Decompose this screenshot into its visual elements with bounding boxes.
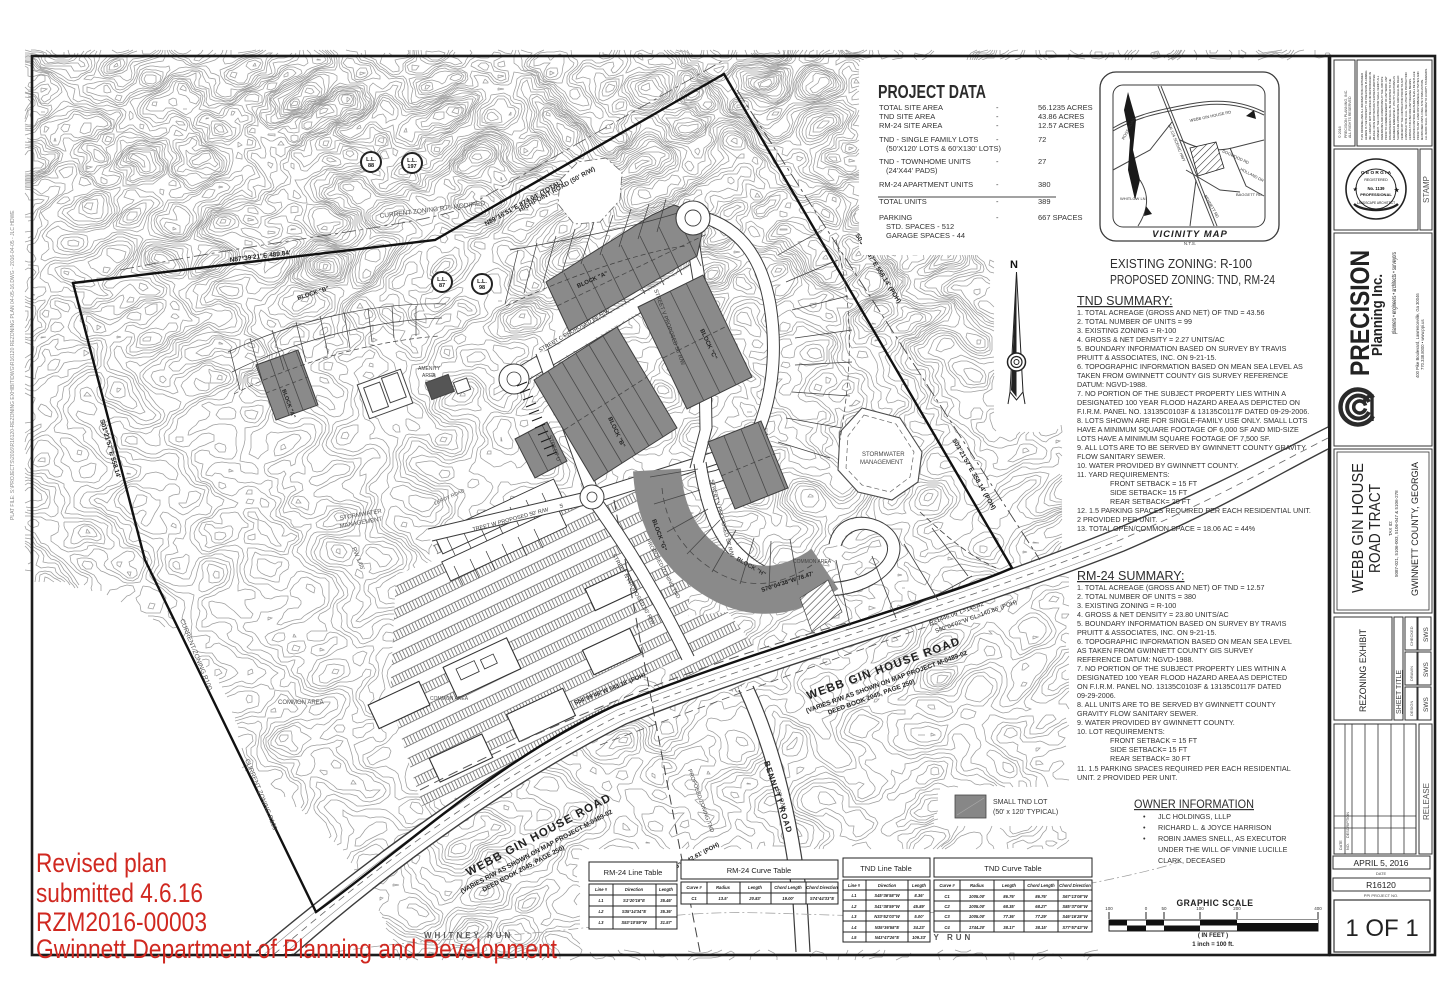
svg-text:TOTAL UNITS: TOTAL UNITS (879, 197, 927, 206)
svg-text:submitted 4.6.16: submitted 4.6.16 (36, 878, 203, 908)
svg-text:MANAGEMENT: MANAGEMENT (860, 460, 903, 466)
svg-text:STORMWATER: STORMWATER (862, 452, 905, 458)
svg-text:Length: Length (748, 885, 762, 890)
svg-text:RZM2016-00003: RZM2016-00003 (36, 907, 207, 937)
svg-text:FRONT SETBACK = 15 FT: FRONT SETBACK = 15 FT (1110, 479, 1198, 488)
svg-text:1005.00': 1005.00' (969, 914, 986, 919)
svg-text:5.00': 5.00' (914, 914, 924, 919)
svg-text:LOTS HAVE A MINIMUM SQUARE FOO: LOTS HAVE A MINIMUM SQUARE FOOTAGE OF 7,… (1077, 434, 1270, 443)
svg-text:REAR SETBACK= 20 FT: REAR SETBACK= 20 FT (1110, 497, 1191, 506)
svg-text:35.36': 35.36' (660, 909, 672, 914)
svg-text:10. WATER PROVIDED BY GWINNETT: 10. WATER PROVIDED BY GWINNETT COUNTY. (1077, 461, 1239, 470)
svg-text:N33°52'03"W: N33°52'03"W (874, 914, 901, 919)
svg-text:UNDER THE WILL OF VINNIE LUCIL: UNDER THE WILL OF VINNIE LUCILLE (1158, 845, 1288, 854)
svg-text:HAVE A MINIMUM SQUARE FOOTAGE: HAVE A MINIMUM SQUARE FOOTAGE OF 6,000 S… (1077, 425, 1299, 434)
svg-text:LANDSCAPE ARCHITECT: LANDSCAPE ARCHITECT (1357, 201, 1395, 205)
svg-text:10. LOT REQUIREMENTS:: 10. LOT REQUIREMENTS: (1077, 727, 1165, 736)
svg-text:TND SITE AREA: TND SITE AREA (879, 112, 935, 121)
svg-text:68.35': 68.35' (1003, 904, 1015, 909)
svg-text:MAINTAINED UNTIL FINAL SITE ST: MAINTAINED UNTIL FINAL SITE STABILIZATIO… (1420, 79, 1424, 140)
svg-text:8. ALL UNITS ARE TO BE SERVED: 8. ALL UNITS ARE TO BE SERVED BY GWINNET… (1077, 700, 1276, 709)
svg-text:REGISTERED: REGISTERED (1364, 178, 1388, 182)
svg-text:L2: L2 (599, 909, 605, 914)
svg-text:PRIOR TO ANY LAND DISTURBANCE: PRIOR TO ANY LAND DISTURBANCE ACTIVITIES… (1416, 72, 1420, 140)
svg-text:( IN FEET ): ( IN FEET ) (1198, 933, 1228, 939)
svg-text:DIMENSIONS AND CONDITIONS AT T: DIMENSIONS AND CONDITIONS AT THE JOB SIT… (1380, 76, 1384, 140)
svg-text:L5: L5 (852, 935, 858, 940)
svg-text:COMMON AREA: COMMON AREA (793, 559, 832, 565)
svg-text:Planning Inc.: Planning Inc. (1370, 274, 1386, 356)
svg-text:(50' x 120' TYPICAL): (50' x 120' TYPICAL) (993, 809, 1058, 816)
svg-text:68.27': 68.27' (1035, 904, 1047, 909)
svg-text:S67°13'08"W: S67°13'08"W (1062, 894, 1088, 899)
svg-text:PRIOR TO COMMENCEMENT OF ANY W: PRIOR TO COMMENCEMENT OF ANY WORK. ANY (1384, 76, 1388, 140)
svg-text:ROAD TRACT: ROAD TRACT (1367, 484, 1384, 573)
svg-text:1 inch = 100 ft.: 1 inch = 100 ft. (1192, 942, 1234, 948)
svg-text:HEREIN IS THE PROPERTY OF PREC: HEREIN IS THE PROPERTY OF PRECISION PLAN… (1364, 71, 1368, 140)
svg-text:PRUITT & ASSOCIATES, INC. ON 9: PRUITT & ASSOCIATES, INC. ON 9-21-15. (1077, 628, 1217, 637)
svg-text:WEBB GIN HOUSE: WEBB GIN HOUSE (1350, 463, 1367, 593)
svg-text:PARKING: PARKING (879, 213, 912, 222)
svg-text:13.5': 13.5' (718, 896, 728, 901)
svg-text:109.33': 109.33' (912, 935, 927, 940)
svg-text:1005.00': 1005.00' (969, 894, 986, 899)
svg-text:TOTAL SITE AREA: TOTAL SITE AREA (879, 103, 943, 112)
svg-text:3. EXISTING ZONING = R-100: 3. EXISTING ZONING = R-100 (1077, 326, 1176, 335)
svg-text:R16120: R16120 (1366, 880, 1396, 890)
svg-text:43.86 ACRES: 43.86 ACRES (1038, 112, 1084, 121)
svg-text:DESIGNATED 100 YEAR FLOOD HAZA: DESIGNATED 100 YEAR FLOOD HAZARD AREA AS… (1077, 398, 1300, 407)
svg-text:09-29-2006.: 09-29-2006. (1077, 691, 1116, 700)
svg-text:200: 200 (1233, 906, 1241, 911)
svg-text:S41°38'59"W: S41°38'59"W (874, 904, 900, 909)
svg-text:DESIGNATED 100 YEAR FLOOD HAZA: DESIGNATED 100 YEAR FLOOD HAZARD AREA AS… (1077, 673, 1287, 682)
svg-text:C1: C1 (944, 894, 950, 899)
svg-text:Revised plan: Revised plan (36, 848, 167, 878)
svg-text:THIS DRAWING AND ALL INFORMATI: THIS DRAWING AND ALL INFORMATION CONTAIN… (1360, 73, 1364, 140)
svg-text:NO.: NO. (1346, 843, 1350, 850)
svg-text:DISCREPANCIES SHALL BE REPORTE: DISCREPANCIES SHALL BE REPORTED TO THE (1388, 78, 1392, 140)
svg-text:AREA: AREA (422, 373, 436, 379)
svg-text:S35°14'34"E: S35°14'34"E (622, 909, 646, 914)
svg-text:REAR SETBACK= 30 FT: REAR SETBACK= 30 FT (1110, 754, 1191, 763)
svg-text:★: ★ (1353, 187, 1358, 193)
svg-text:2. TOTAL NUMBER OF UNITS = 99: 2. TOTAL NUMBER OF UNITS = 99 (1077, 317, 1192, 326)
svg-text:56.1235 ACRES: 56.1235 ACRES (1038, 103, 1093, 112)
svg-text:Line #: Line # (595, 887, 608, 892)
svg-text:19.00': 19.00' (782, 896, 794, 901)
svg-text:8.36': 8.36' (914, 893, 924, 898)
svg-text:DATUM: NGVD-1988.: DATUM: NGVD-1988. (1077, 380, 1147, 389)
svg-text:SWS: SWS (1423, 697, 1430, 712)
svg-text:Line #: Line # (848, 883, 861, 888)
svg-text:45.89': 45.89' (912, 904, 925, 909)
svg-text:100: 100 (1196, 906, 1204, 911)
svg-text:11. YARD REQUIREMENTS:: 11. YARD REQUIREMENTS: (1077, 470, 1170, 479)
svg-text:L3: L3 (599, 920, 605, 925)
svg-text:CLARK, DECEASED: CLARK, DECEASED (1158, 856, 1226, 865)
svg-text:PPI PROJECT NO.: PPI PROJECT NO. (1364, 893, 1398, 898)
svg-text:ROBIN JAMES SNELL, AS EXECUTOR: ROBIN JAMES SNELL, AS EXECUTOR (1158, 834, 1286, 843)
svg-text:EROSION CONTROL MEASURES SHALL: EROSION CONTROL MEASURES SHALL BE IN PLA… (1412, 71, 1416, 140)
svg-text:REFERENCE DATUM: NGVD-1988.: REFERENCE DATUM: NGVD-1988. (1077, 655, 1193, 664)
svg-text:Length: Length (1002, 883, 1016, 888)
svg-text:TND SUMMARY:: TND SUMMARY: (1077, 294, 1173, 308)
svg-text:12. 1.5 PARKING SPACES REQUIRE: 12. 1.5 PARKING SPACES REQUIRED PER EACH… (1077, 506, 1311, 515)
svg-text:86.76': 86.76' (1035, 894, 1047, 899)
svg-text:S45°36'58"W: S45°36'58"W (874, 893, 900, 898)
svg-text:6. TOPOGRAPHIC INFORMATION BAS: 6. TOPOGRAPHIC INFORMATION BASED ON MEAN… (1077, 362, 1303, 371)
svg-text:SMALL TND LOT: SMALL TND LOT (993, 799, 1048, 806)
svg-text:SHOWN ARE APPROXIMATE AND SHAL: SHOWN ARE APPROXIMATE AND SHALL BE FIELD (1396, 76, 1400, 140)
svg-text:ENGINEER IMMEDIATELY. UTILITY: ENGINEER IMMEDIATELY. UTILITY LOCATIONS … (1392, 76, 1396, 140)
svg-text:CONSENT. THE CONTRACTOR SHALL: CONSENT. THE CONTRACTOR SHALL VERIFY ALL (1376, 75, 1380, 140)
svg-text:OWNER INFORMATION: OWNER INFORMATION (1134, 797, 1254, 811)
svg-text:RELEASE: RELEASE (1422, 783, 1431, 820)
svg-text:86.76': 86.76' (1003, 894, 1015, 899)
svg-text:SWS: SWS (1423, 662, 1430, 677)
svg-text:770.338.8000 • www.ppi.us: 770.338.8000 • www.ppi.us (1420, 319, 1425, 370)
svg-text:planners • engineers • arc: planners • engineers • architects • surv… (1392, 252, 1398, 334)
svg-text:REZONING EXHIBIT: REZONING EXHIBIT (1358, 629, 1369, 712)
svg-text:ALL RIGHTS RESERVED: ALL RIGHTS RESERVED (1348, 96, 1352, 138)
svg-text:6. TOPOGRAPHIC INFORMATION BAS: 6. TOPOGRAPHIC INFORMATION BASED ON MEAN… (1077, 637, 1292, 646)
svg-text:Length: Length (659, 887, 673, 892)
svg-text:DESCRIPTION: DESCRIPTION (1346, 812, 1350, 838)
svg-text:COMMON AREA: COMMON AREA (278, 700, 324, 706)
svg-text:9. ALL LOTS ARE TO BE SERVED B: 9. ALL LOTS ARE TO BE SERVED BY GWINNETT… (1077, 443, 1306, 452)
svg-text:RICHARD L. & JOYCE HARRISON: RICHARD L. & JOYCE HARRISON (1158, 823, 1271, 832)
svg-text:RM-24 APARTMENT UNITS: RM-24 APARTMENT UNITS (879, 180, 973, 189)
svg-text:DATE: DATE (1376, 871, 1387, 876)
svg-text:EXISTING ZONING: R-100: EXISTING ZONING: R-100 (1110, 256, 1252, 271)
svg-text:F.I.R.M. PANEL NO. 13135C0103F: F.I.R.M. PANEL NO. 13135C0103F & 13135C0… (1077, 407, 1309, 416)
svg-text:PROFESSIONAL: PROFESSIONAL (1360, 192, 1392, 197)
svg-text:SHEET TITLE: SHEET TITLE (1396, 670, 1403, 714)
svg-text:INC. AND MAY NOT BE COPIED OR: INC. AND MAY NOT BE COPIED OR REPRODUCED… (1368, 72, 1372, 140)
svg-text:C3: C3 (944, 914, 950, 919)
svg-text:N35°36'58"E: N35°36'58"E (875, 925, 900, 930)
svg-text:S74°44'33"E: S74°44'33"E (810, 896, 834, 901)
svg-text:PROJECT DATA: PROJECT DATA (878, 82, 986, 102)
svg-text:77.36': 77.36' (1003, 914, 1015, 919)
svg-text:AS TAKEN FROM GWINNETT COUNTY: AS TAKEN FROM GWINNETT COUNTY GIS SURVEY (1077, 646, 1253, 655)
svg-text:GRAVITY FLOW SANITARY SEWER.: GRAVITY FLOW SANITARY SEWER. (1077, 709, 1198, 718)
svg-text:CONSTRUCTION. CALL THE UTILITI: CONSTRUCTION. CALL THE UTILITIES PROTECT… (1404, 72, 1408, 140)
svg-text:L3: L3 (852, 914, 858, 919)
svg-text:FLOW SANITARY SEWER.: FLOW SANITARY SEWER. (1077, 452, 1165, 461)
svg-text:★: ★ (1394, 187, 1400, 194)
svg-text:13. TOTAL OPEN/COMMON SPACE =: 13. TOTAL OPEN/COMMON SPACE = 18.06 AC =… (1077, 524, 1256, 533)
svg-text:S1°20'16"E: S1°20'16"E (623, 898, 645, 903)
svg-text:APRIL 5, 2016: APRIL 5, 2016 (1354, 858, 1409, 868)
svg-text:RM-24 Curve Table: RM-24 Curve Table (727, 866, 791, 875)
svg-text:GRAPHIC SCALE: GRAPHIC SCALE (1177, 898, 1254, 909)
svg-text:N.T.S.: N.T.S. (1184, 241, 1196, 246)
svg-text:31.57': 31.57' (660, 920, 672, 925)
svg-text:Radius: Radius (970, 883, 985, 888)
svg-text:35.46': 35.46' (660, 898, 672, 903)
svg-text:BAGGETT RD: BAGGETT RD (1236, 192, 1262, 197)
svg-text:2. TOTAL NUMBER OF UNITS = 380: 2. TOTAL NUMBER OF UNITS = 380 (1077, 592, 1196, 601)
svg-text:C2: C2 (944, 904, 950, 909)
svg-text:98: 98 (479, 285, 485, 291)
svg-text:FRONT SETBACK = 15 FT: FRONT SETBACK = 15 FT (1110, 736, 1198, 745)
svg-text:COMMON AREA: COMMON AREA (430, 696, 469, 702)
svg-text:5. BOUNDARY INFORMATION BASED: 5. BOUNDARY INFORMATION BASED ON SURVEY … (1077, 344, 1287, 353)
svg-text:1744.20': 1744.20' (969, 925, 986, 930)
svg-text:C1: C1 (691, 896, 697, 901)
svg-text:(50'X120' LOTS & 60'X130' LOTS: (50'X120' LOTS & 60'X130' LOTS) (886, 144, 1001, 153)
svg-text:Chord Direction: Chord Direction (806, 885, 838, 890)
svg-text:50: 50 (1161, 906, 1167, 911)
svg-text:C4: C4 (944, 925, 950, 930)
svg-text:S85°37'08"W: S85°37'08"W (1062, 904, 1088, 909)
svg-text:RM-24 Line Table: RM-24 Line Table (604, 868, 663, 877)
svg-text:TND - TOWNHOME UNITS: TND - TOWNHOME UNITS (879, 157, 971, 166)
svg-text:Length: Length (912, 883, 926, 888)
svg-text:S53°10'59"W: S53°10'59"W (621, 920, 647, 925)
svg-text:1 OF 1: 1 OF 1 (1345, 915, 1418, 942)
svg-text:G E O R G I A: G E O R G I A (1361, 170, 1392, 175)
svg-text:RM-24 SUMMARY:: RM-24 SUMMARY: (1077, 569, 1184, 583)
svg-text:© 2016: © 2016 (1338, 126, 1342, 138)
svg-text:7. NO PORTION OF THE SUBJECT P: 7. NO PORTION OF THE SUBJECT PROPERTY LI… (1077, 664, 1286, 673)
svg-text:Chord Length: Chord Length (774, 885, 802, 890)
svg-text:No. 1139: No. 1139 (1368, 186, 1386, 191)
svg-text:S77°57'43"W: S77°57'43"W (1062, 925, 1088, 930)
svg-text:38.15': 38.15' (1035, 925, 1047, 930)
svg-text:88: 88 (368, 163, 374, 169)
svg-text:4. GROSS & NET DENSITY = 23.80: 4. GROSS & NET DENSITY = 23.80 UNITS/AC (1077, 610, 1229, 619)
svg-text:PRUITT & ASSOCIATES, INC. ON 9: PRUITT & ASSOCIATES, INC. ON 9-21-15. (1077, 353, 1217, 362)
svg-text:VICINITY MAP: VICINITY MAP (1152, 229, 1228, 240)
svg-text:8. LOTS SHOWN ARE FOR SINGLE-F: 8. LOTS SHOWN ARE FOR SINGLE-FAMILY USE … (1077, 416, 1308, 425)
svg-text:389: 389 (1038, 197, 1051, 206)
svg-text:GARAGE SPACES - 44: GARAGE SPACES - 44 (886, 231, 965, 240)
svg-text:1005.00': 1005.00' (969, 904, 986, 909)
svg-text:JLC HOLDINGS, LLLP: JLC HOLDINGS, LLLP (1158, 812, 1231, 821)
svg-text:Gwinnett Department of Plannin: Gwinnett Department of Planning and Deve… (36, 934, 557, 964)
svg-text:(24'X44' PADS): (24'X44' PADS) (886, 166, 938, 175)
svg-text:5087-021, 5106-003, 5106-047 &: 5087-021, 5106-003, 5106-047 & 5106-278 (1394, 490, 1399, 577)
svg-text:WHITLOW LN: WHITLOW LN (1120, 196, 1146, 201)
svg-text:197: 197 (407, 164, 416, 170)
svg-text:Direction: Direction (878, 883, 897, 888)
svg-text:CHECKED: CHECKED (1409, 626, 1414, 646)
svg-text:L1: L1 (599, 898, 605, 903)
svg-text:Direction: Direction (625, 887, 644, 892)
svg-text:1. TOTAL ACREAGE (GROSS AND NE: 1. TOTAL ACREAGE (GROSS AND NET) OF TND … (1077, 308, 1265, 317)
svg-text:L4: L4 (852, 925, 858, 930)
svg-text:TAKEN FROM GWINNETT COUNTY GIS: TAKEN FROM GWINNETT COUNTY GIS SURVEY RE… (1077, 371, 1288, 380)
svg-text:PLAT FILE: S:\PROJECTS\2016\R1: PLAT FILE: S:\PROJECTS\2016\R16120-REZON… (10, 210, 16, 520)
svg-text:400: 400 (1314, 906, 1322, 911)
svg-text:77.29': 77.29' (1035, 914, 1047, 919)
svg-text:Chord Direction: Chord Direction (1059, 883, 1091, 888)
svg-text:5. BOUNDARY INFORMATION BASED: 5. BOUNDARY INFORMATION BASED ON SURVEY … (1077, 619, 1287, 628)
svg-text:PROPOSED ZONING: TND, RM-24: PROPOSED ZONING: TND, RM-24 (1110, 272, 1275, 287)
svg-text:TND Line Table: TND Line Table (860, 864, 912, 873)
svg-text:DESIGN: DESIGN (1409, 701, 1414, 716)
svg-text:DRAWN: DRAWN (1409, 666, 1414, 681)
svg-text:CENTER AT 811 BEFORE ANY DIGGI: CENTER AT 811 BEFORE ANY DIGGING BEGINS. (1408, 78, 1412, 140)
svg-text:Radius: Radius (716, 885, 731, 890)
svg-text:TND Curve Table: TND Curve Table (984, 864, 1041, 873)
svg-text:STD. SPACES - 512: STD. SPACES - 512 (886, 222, 954, 231)
svg-text:2 PROVIDED PER UNIT.: 2 PROVIDED PER UNIT. (1077, 515, 1157, 524)
svg-text:380: 380 (1038, 180, 1051, 189)
svg-text:12.57 ACRES: 12.57 ACRES (1038, 121, 1084, 130)
svg-text:L2: L2 (852, 904, 858, 909)
svg-text:3. EXISTING ZONING = R-100: 3. EXISTING ZONING = R-100 (1077, 601, 1176, 610)
svg-text:Curve #: Curve # (939, 883, 955, 888)
svg-text:100: 100 (1105, 906, 1113, 911)
svg-text:667 SPACES: 667 SPACES (1038, 213, 1082, 222)
svg-text:38.17': 38.17' (1003, 925, 1015, 930)
svg-text:87: 87 (439, 283, 445, 289)
svg-text:STAMP: STAMP (1422, 176, 1431, 203)
svg-text:RM-24 SITE AREA: RM-24 SITE AREA (879, 121, 942, 130)
svg-text:VERIFIED BY THE CONTRACTOR PRI: VERIFIED BY THE CONTRACTOR PRIOR TO ANY (1400, 78, 1404, 140)
svg-text:Chord Length: Chord Length (1027, 883, 1055, 888)
svg-text:AMENITY: AMENITY (418, 366, 441, 372)
svg-text:SWS: SWS (1423, 627, 1430, 642)
svg-text:SIDE SETBACK= 15 FT: SIDE SETBACK= 15 FT (1110, 745, 1188, 754)
svg-text:1. TOTAL ACREAGE (GROSS AND NE: 1. TOTAL ACREAGE (GROSS AND NET) OF TND … (1077, 583, 1265, 592)
svg-text:27: 27 (1038, 157, 1046, 166)
svg-text:L1: L1 (852, 893, 858, 898)
svg-text:11. 1.5 PARKING SPACES REQUIRE: 11. 1.5 PARKING SPACES REQUIRED PER EACH… (1077, 764, 1291, 773)
svg-text:ON F.I.R.M. PANEL NO. 13135C01: ON F.I.R.M. PANEL NO. 13135C0103F & 1313… (1077, 682, 1281, 691)
svg-text:N: N (1010, 259, 1018, 271)
svg-text:S46°16'28"W: S46°16'28"W (1062, 914, 1088, 919)
svg-text:N43°47'26"E: N43°47'26"E (875, 935, 900, 940)
svg-text:9. WATER PROVIDED BY GWINNETT: 9. WATER PROVIDED BY GWINNETT COUNTY. (1077, 718, 1235, 727)
svg-text:UNIT. 2 PROVIDED PER UNIT.: UNIT. 2 PROVIDED PER UNIT. (1077, 773, 1177, 782)
svg-text:ALL WORK SHALL CONFORM TO COUN: ALL WORK SHALL CONFORM TO COUNTY STANDAR… (1424, 68, 1428, 140)
svg-text:34.23': 34.23' (913, 925, 925, 930)
svg-text:GWINNETT COUNTY, GEORGIA: GWINNETT COUNTY, GEORGIA (1410, 461, 1421, 596)
svg-text:72: 72 (1038, 135, 1046, 144)
svg-text:SIDE SETBACK= 15 FT: SIDE SETBACK= 15 FT (1110, 488, 1188, 497)
svg-text:DATE: DATE (1339, 840, 1343, 850)
svg-text:WHOLE OR IN PART WITHOUT EXPRE: WHOLE OR IN PART WITHOUT EXPRESS WRITTEN (1372, 75, 1376, 140)
svg-text:TAX ID:: TAX ID: (1388, 521, 1393, 536)
svg-text:7. NO PORTION OF THE SUBJECT P: 7. NO PORTION OF THE SUBJECT PROPERTY LI… (1077, 389, 1286, 398)
svg-text:TND - SINGLE FAMILY LOTS: TND - SINGLE FAMILY LOTS (879, 135, 978, 144)
svg-text:20.83': 20.83' (748, 896, 761, 901)
svg-text:Curve #: Curve # (686, 885, 702, 890)
svg-text:4. GROSS & NET DENSITY = 2.27: 4. GROSS & NET DENSITY = 2.27 UNITS/AC (1077, 335, 1225, 344)
